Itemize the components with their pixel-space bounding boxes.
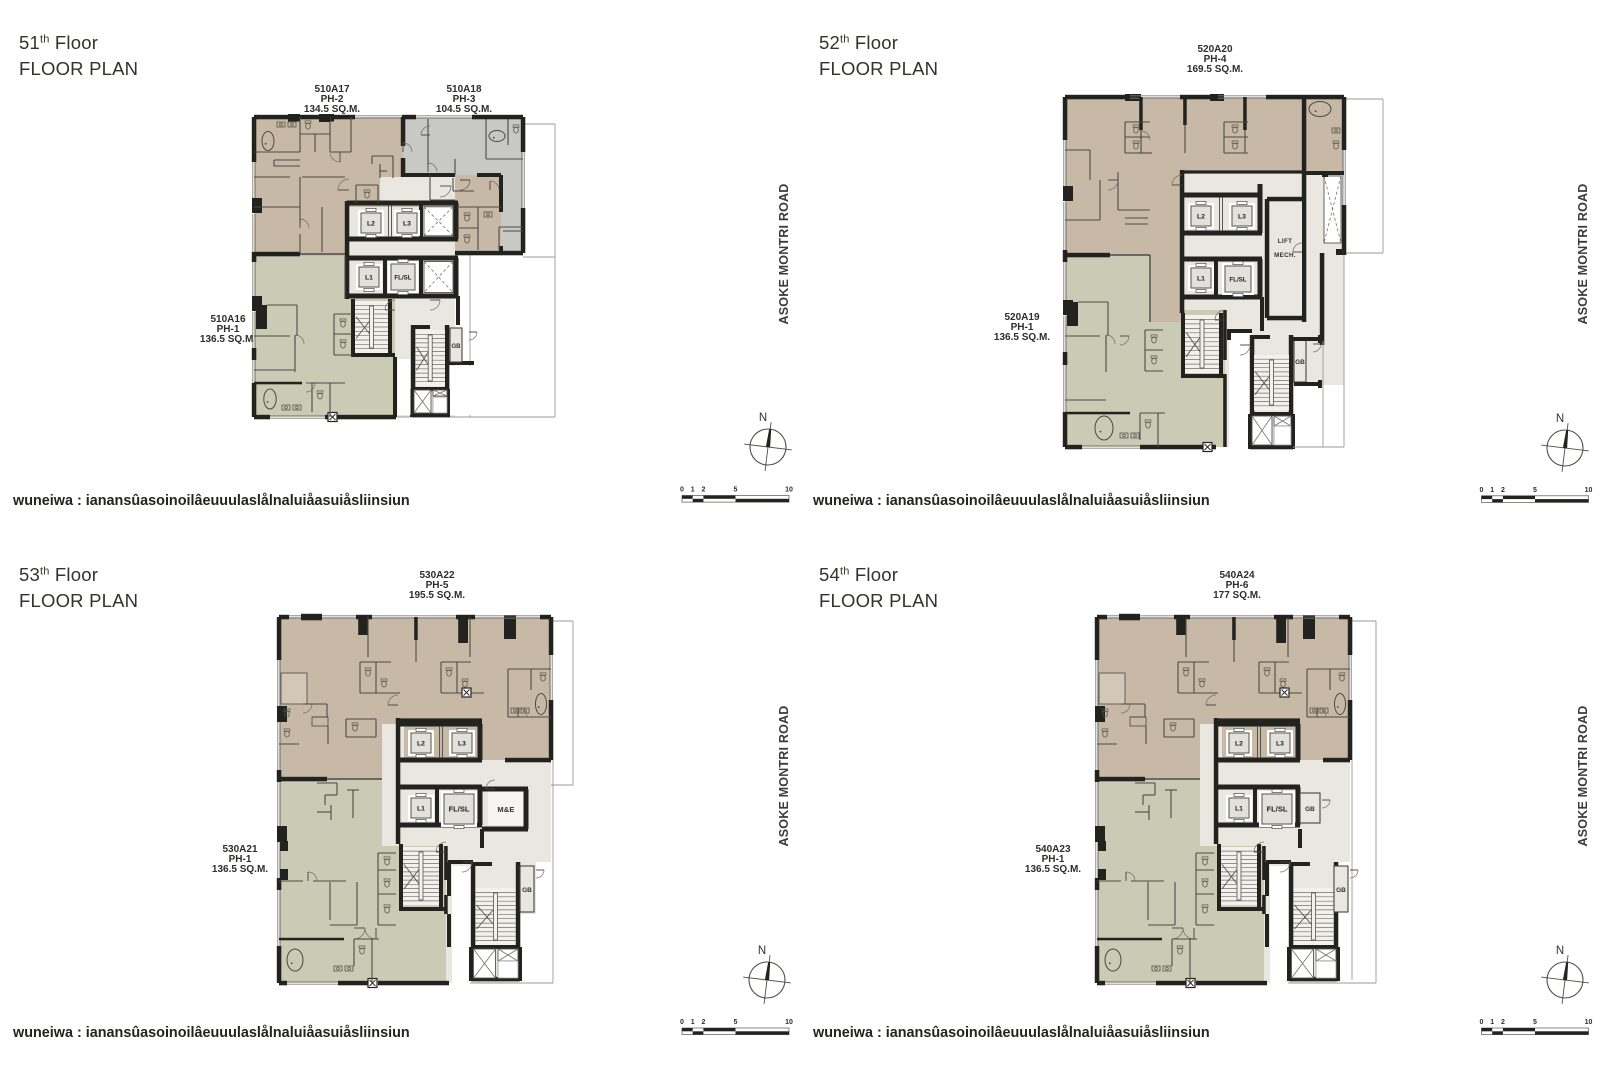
svg-text:wuneiwa : ianansûasoinoilâeuuu: wuneiwa : ianansûasoinoilâeuuulaslålnalu… [812,1025,1210,1041]
svg-text:wuneiwa : ianansûasoinoilâeuuu: wuneiwa : ianansûasoinoilâeuuulaslålnalu… [12,493,410,509]
svg-text:5: 5 [1533,1019,1537,1026]
svg-text:L3: L3 [403,221,411,228]
svg-text:53th Floor: 53th Floor [19,564,98,585]
svg-text:L2: L2 [367,221,375,228]
svg-text:FL/SL: FL/SL [1267,805,1288,814]
svg-text:169.5 SQ.M.: 169.5 SQ.M. [1187,64,1243,75]
svg-text:5: 5 [734,1019,738,1026]
svg-text:136.5 SQ.M.: 136.5 SQ.M. [1025,864,1081,875]
svg-text:10: 10 [785,487,793,494]
svg-text:54th Floor: 54th Floor [819,564,898,585]
svg-text:MECH.: MECH. [1274,252,1296,259]
svg-text:ASOKE MONTRI ROAD: ASOKE MONTRI ROAD [1576,706,1590,847]
svg-text:0: 0 [1480,1019,1484,1026]
svg-text:2: 2 [701,1019,705,1026]
svg-text:1: 1 [691,1019,695,1026]
svg-text:GB: GB [452,344,462,350]
svg-text:N: N [1556,945,1564,957]
svg-text:136.5 SQ.M.: 136.5 SQ.M. [212,864,268,875]
svg-text:wuneiwa : ianansûasoinoilâeuuu: wuneiwa : ianansûasoinoilâeuuulaslålnalu… [812,493,1210,509]
svg-text:N: N [1556,413,1564,425]
svg-text:195.5 SQ.M.: 195.5 SQ.M. [409,590,465,601]
svg-text:GB: GB [1305,806,1315,813]
svg-text:0: 0 [1480,487,1484,494]
svg-text:FLOOR PLAN: FLOOR PLAN [819,58,938,79]
svg-text:L2: L2 [1235,741,1243,748]
svg-text:N: N [758,945,766,957]
svg-text:L1: L1 [365,275,373,282]
svg-text:5: 5 [734,487,738,494]
svg-text:1: 1 [691,487,695,494]
svg-text:1: 1 [1490,487,1494,494]
svg-text:134.5 SQ.M.: 134.5 SQ.M. [304,104,360,115]
svg-text:GB: GB [1336,887,1346,894]
svg-text:0: 0 [680,1019,684,1026]
svg-text:FL/SL: FL/SL [394,275,411,282]
svg-text:2: 2 [1501,1019,1505,1026]
svg-text:L3: L3 [1238,214,1246,221]
svg-text:wuneiwa : ianansûasoinoilâeuuu: wuneiwa : ianansûasoinoilâeuuulaslålnalu… [12,1025,410,1041]
svg-text:LIFT: LIFT [1278,238,1293,245]
svg-text:FLOOR PLAN: FLOOR PLAN [19,58,138,79]
svg-text:ASOKE MONTRI ROAD: ASOKE MONTRI ROAD [777,184,791,325]
svg-text:1: 1 [1490,1019,1494,1026]
svg-text:L3: L3 [1276,741,1284,748]
svg-text:52th Floor: 52th Floor [819,32,898,53]
svg-text:10: 10 [1585,1019,1593,1026]
svg-text:177 SQ.M.: 177 SQ.M. [1213,590,1261,601]
svg-text:ASOKE MONTRI ROAD: ASOKE MONTRI ROAD [777,706,791,847]
svg-text:L3: L3 [458,741,466,748]
svg-text:51th Floor: 51th Floor [19,32,98,53]
svg-text:2: 2 [1501,487,1505,494]
svg-text:2: 2 [701,487,705,494]
svg-text:L2: L2 [1197,214,1205,221]
svg-text:FLOOR PLAN: FLOOR PLAN [19,590,138,611]
svg-text:FLOOR PLAN: FLOOR PLAN [819,590,938,611]
svg-text:L1: L1 [1235,806,1243,813]
svg-text:136.5 SQ.M.: 136.5 SQ.M. [994,332,1050,343]
svg-text:0: 0 [680,487,684,494]
svg-text:5: 5 [1533,487,1537,494]
svg-text:136.5 SQ.M.: 136.5 SQ.M. [200,334,256,345]
svg-text:ASOKE MONTRI ROAD: ASOKE MONTRI ROAD [1576,184,1590,325]
svg-text:L2: L2 [417,741,425,748]
svg-text:N: N [759,412,767,424]
svg-text:M&E: M&E [497,805,514,814]
svg-text:10: 10 [785,1019,793,1026]
svg-text:L1: L1 [1197,276,1205,283]
svg-text:FL/SL: FL/SL [449,805,470,814]
svg-text:104.5 SQ.M.: 104.5 SQ.M. [436,104,492,115]
svg-text:FL/SL: FL/SL [1229,277,1246,284]
svg-text:10: 10 [1585,487,1593,494]
svg-text:L1: L1 [417,806,425,813]
svg-text:GB: GB [522,887,532,894]
svg-text:GB: GB [1295,359,1305,366]
